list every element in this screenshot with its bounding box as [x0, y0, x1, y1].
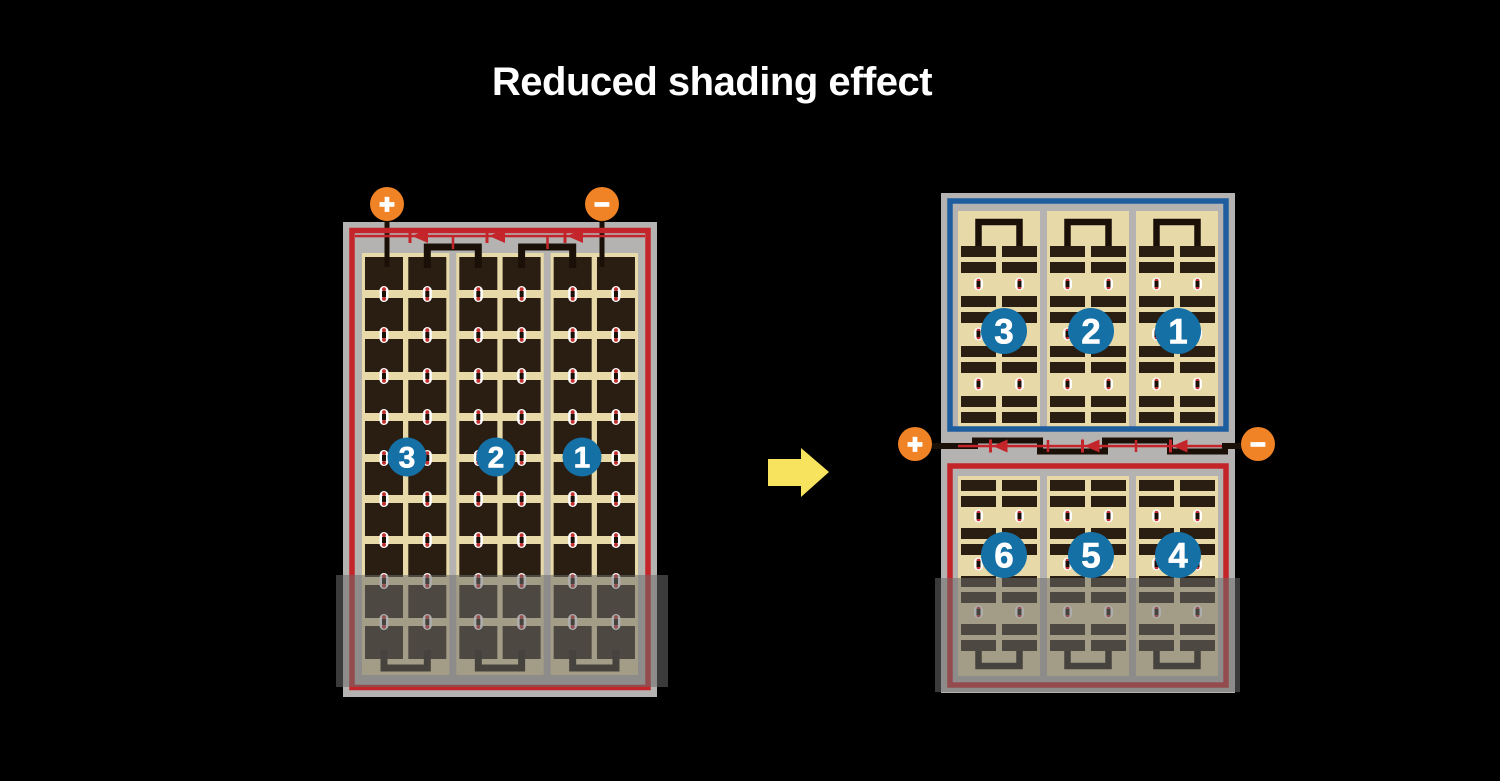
- half-cell: [1139, 412, 1174, 423]
- string-number-label: 5: [1081, 537, 1100, 576]
- solar-cell: [459, 544, 497, 577]
- connector-dash: [425, 496, 429, 502]
- connector-dash: [614, 291, 618, 297]
- connector-dot: [425, 379, 429, 383]
- half-cell: [1002, 396, 1037, 407]
- connector-dash: [614, 537, 618, 543]
- connector-dash: [520, 291, 524, 297]
- connector-dot: [520, 461, 524, 465]
- string-number-label: 2: [1081, 313, 1100, 352]
- half-cell: [1002, 262, 1037, 273]
- connector-dot: [382, 369, 386, 373]
- connector-dash: [425, 332, 429, 338]
- connector-dot: [571, 328, 575, 332]
- connector-dash: [1018, 281, 1022, 287]
- solar-cell: [503, 380, 541, 413]
- half-cell: [1091, 412, 1126, 423]
- connector-dot: [425, 328, 429, 332]
- connector-dash: [520, 537, 524, 543]
- connector-dot: [382, 533, 386, 537]
- connector-dot: [614, 502, 618, 506]
- connector-dash: [977, 381, 981, 387]
- solar-cell: [597, 298, 635, 331]
- connector-dash: [1066, 281, 1070, 287]
- connector-dash: [476, 496, 480, 502]
- half-cell: [1180, 396, 1215, 407]
- solar-cell: [597, 339, 635, 372]
- solar-cell: [365, 298, 403, 331]
- connector-dot: [382, 328, 386, 332]
- connector-dash: [614, 496, 618, 502]
- half-cell: [1091, 262, 1126, 273]
- terminal-stem: [385, 219, 390, 267]
- connector-dash: [571, 332, 575, 338]
- string-number-label: 1: [574, 442, 591, 475]
- connector-dot: [571, 543, 575, 547]
- solar-cell: [554, 298, 592, 331]
- connector-dash: [614, 414, 618, 420]
- solar-cell: [365, 339, 403, 372]
- connector-dash: [1018, 381, 1022, 387]
- connector-dash: [1155, 381, 1159, 387]
- connector-dot: [571, 410, 575, 414]
- connector-dot: [425, 543, 429, 547]
- half-cell: [1050, 246, 1085, 257]
- connector-dash: [520, 332, 524, 338]
- solar-cell: [459, 339, 497, 372]
- connector-dot: [476, 533, 480, 537]
- half-cell: [961, 480, 996, 491]
- solar-cell: [597, 503, 635, 536]
- half-cell: [1050, 262, 1085, 273]
- solar-cell: [597, 380, 635, 413]
- connector-dash: [476, 291, 480, 297]
- connector-dot: [476, 338, 480, 342]
- connector-dot: [614, 461, 618, 465]
- half-cell: [1180, 412, 1215, 423]
- right-panel-half-cell: 321654+−: [898, 193, 1275, 693]
- string-number-label: 2: [488, 442, 505, 475]
- connector-dot: [382, 461, 386, 465]
- connector-dash: [425, 414, 429, 420]
- half-cell: [1002, 480, 1037, 491]
- string-number-label: 1: [1168, 313, 1187, 352]
- connector-dash: [977, 513, 981, 519]
- solar-cell: [597, 462, 635, 495]
- half-cell: [961, 246, 996, 257]
- plus-terminal-label: +: [907, 429, 922, 459]
- connector-dot: [571, 502, 575, 506]
- connector-dot: [520, 420, 524, 424]
- connector-dash: [382, 332, 386, 338]
- connector-dot: [382, 451, 386, 455]
- connector-dash: [1107, 281, 1111, 287]
- connector-dot: [614, 287, 618, 291]
- string-number-label: 4: [1168, 537, 1188, 576]
- string-divider: [1040, 211, 1047, 429]
- connector-dot: [614, 533, 618, 537]
- minus-terminal-label: −: [594, 189, 609, 219]
- connector-dash: [571, 414, 575, 420]
- half-cell: [1050, 480, 1085, 491]
- solar-cell: [554, 503, 592, 536]
- minus-terminal-label: −: [1250, 429, 1265, 459]
- half-cell: [1002, 246, 1037, 257]
- connector-dash: [571, 291, 575, 297]
- half-cell: [1091, 396, 1126, 407]
- solar-cell: [408, 339, 446, 372]
- connector-dot: [476, 410, 480, 414]
- solar-cell: [365, 257, 403, 290]
- connector-dot: [382, 420, 386, 424]
- connector-dash: [614, 373, 618, 379]
- half-cell: [1091, 496, 1126, 507]
- solar-cell: [365, 380, 403, 413]
- connector-dot: [614, 410, 618, 414]
- string-number-label: 3: [399, 442, 416, 475]
- half-cell: [961, 496, 996, 507]
- connector-dash: [1107, 513, 1111, 519]
- connector-dash: [382, 373, 386, 379]
- half-cell: [1091, 296, 1126, 307]
- diode-cathode-bar: [1169, 440, 1172, 453]
- connector-dot: [571, 379, 575, 383]
- connector-dot: [476, 328, 480, 332]
- solar-cell: [408, 544, 446, 577]
- connector-dot: [614, 379, 618, 383]
- connector-dot: [520, 533, 524, 537]
- solar-cell: [365, 544, 403, 577]
- half-cell: [1091, 362, 1126, 373]
- connector-dot: [614, 451, 618, 455]
- connector-dot: [571, 287, 575, 291]
- solar-cell: [408, 298, 446, 331]
- connector-dash: [382, 455, 386, 461]
- connector-dot: [476, 502, 480, 506]
- half-cell: [1139, 496, 1174, 507]
- bus-tap: [452, 236, 455, 249]
- connector-dot: [382, 287, 386, 291]
- connector-dot: [614, 420, 618, 424]
- connector-dot: [382, 502, 386, 506]
- diode-cathode-bar: [409, 229, 412, 243]
- plus-terminal-label: +: [379, 189, 394, 219]
- connector-dot: [520, 492, 524, 496]
- connector-dot: [614, 543, 618, 547]
- shading-overlay: [935, 578, 1240, 692]
- connector-dot: [425, 287, 429, 291]
- diode-cathode-bar: [989, 440, 992, 453]
- connector-dash: [571, 537, 575, 543]
- half-cell: [961, 362, 996, 373]
- connector-dash: [1066, 513, 1070, 519]
- connector-dot: [382, 297, 386, 301]
- connector-dot: [425, 410, 429, 414]
- connector-dot: [476, 297, 480, 301]
- solar-cell: [408, 503, 446, 536]
- connector-dot: [476, 287, 480, 291]
- connector-dot: [520, 543, 524, 547]
- half-cell: [1139, 262, 1174, 273]
- transform-arrow-icon: [768, 448, 829, 497]
- connector-dash: [382, 496, 386, 502]
- connector-dash: [520, 373, 524, 379]
- connector-dash: [1196, 513, 1200, 519]
- half-cell: [1139, 296, 1174, 307]
- half-cell: [961, 296, 996, 307]
- solar-cell: [554, 544, 592, 577]
- connector-dash: [476, 537, 480, 543]
- half-cell: [1180, 362, 1215, 373]
- connector-dash: [1196, 381, 1200, 387]
- half-cell: [1180, 246, 1215, 257]
- connector-dot: [520, 297, 524, 301]
- connector-dot: [382, 410, 386, 414]
- connector-dot: [382, 379, 386, 383]
- connector-dot: [425, 502, 429, 506]
- diode-cathode-bar: [564, 229, 567, 243]
- half-cell: [1139, 480, 1174, 491]
- bus-tap: [546, 236, 549, 249]
- solar-cell: [503, 544, 541, 577]
- connector-dot: [520, 369, 524, 373]
- shading-effect-diagram: 321+−321654+−: [0, 0, 1500, 781]
- solar-cell: [459, 298, 497, 331]
- connector-dot: [425, 420, 429, 424]
- shading-overlay: [336, 575, 668, 687]
- connector-dash: [571, 496, 575, 502]
- half-cell: [1139, 362, 1174, 373]
- connector-dash: [425, 373, 429, 379]
- string-number-label: 3: [994, 313, 1013, 352]
- connector-dash: [614, 455, 618, 461]
- solar-cell: [554, 339, 592, 372]
- half-cell: [961, 412, 996, 423]
- diagram-canvas: Reduced shading effect 321+−321654+−: [0, 0, 1500, 781]
- connector-dash: [520, 414, 524, 420]
- connector-dot: [382, 338, 386, 342]
- connector-dot: [425, 297, 429, 301]
- connector-dash: [382, 537, 386, 543]
- solar-cell: [459, 380, 497, 413]
- connector-dash: [1066, 561, 1070, 567]
- half-cell: [1002, 412, 1037, 423]
- connector-dot: [520, 287, 524, 291]
- connector-dash: [1066, 381, 1070, 387]
- half-cell: [961, 262, 996, 273]
- connector-dot: [614, 369, 618, 373]
- connector-dash: [977, 561, 981, 567]
- half-cell: [1050, 362, 1085, 373]
- half-cell: [1180, 496, 1215, 507]
- solar-cell: [597, 421, 635, 454]
- connector-dash: [476, 332, 480, 338]
- connector-dash: [425, 537, 429, 543]
- connector-dot: [571, 297, 575, 301]
- connector-dot: [382, 543, 386, 547]
- connector-dash: [977, 331, 981, 337]
- connector-dash: [476, 373, 480, 379]
- connector-dot: [425, 338, 429, 342]
- connector-dot: [425, 533, 429, 537]
- connector-dash: [1196, 281, 1200, 287]
- solar-cell: [408, 380, 446, 413]
- connector-dash: [571, 373, 575, 379]
- connector-dash: [425, 291, 429, 297]
- half-cell: [1050, 396, 1085, 407]
- half-cell: [1050, 496, 1085, 507]
- connector-dot: [614, 328, 618, 332]
- half-cell: [1091, 246, 1126, 257]
- connector-dot: [382, 492, 386, 496]
- connector-dot: [520, 379, 524, 383]
- connector-dot: [520, 338, 524, 342]
- solar-cell: [597, 544, 635, 577]
- connector-dash: [520, 455, 524, 461]
- connector-dash: [1155, 281, 1159, 287]
- diode-cathode-bar: [1081, 440, 1084, 453]
- connector-dash: [614, 332, 618, 338]
- bus-tap: [1047, 440, 1050, 452]
- connector-dot: [571, 492, 575, 496]
- half-cell: [1180, 296, 1215, 307]
- connector-dash: [382, 291, 386, 297]
- connector-dot: [571, 369, 575, 373]
- solar-cell: [503, 298, 541, 331]
- half-cell: [1050, 296, 1085, 307]
- connector-dot: [614, 492, 618, 496]
- half-cell: [1002, 362, 1037, 373]
- solar-cell: [365, 503, 403, 536]
- half-cell: [1002, 496, 1037, 507]
- solar-cell: [503, 339, 541, 372]
- half-cell: [1139, 396, 1174, 407]
- half-cell: [1180, 480, 1215, 491]
- connector-dash: [1018, 513, 1022, 519]
- string-divider: [1129, 211, 1136, 429]
- solar-cell: [459, 503, 497, 536]
- connector-dot: [425, 369, 429, 373]
- connector-dot: [476, 420, 480, 424]
- connector-dash: [476, 414, 480, 420]
- connector-dot: [571, 533, 575, 537]
- connector-dot: [520, 451, 524, 455]
- half-cell: [1050, 412, 1085, 423]
- string-number-label: 6: [994, 537, 1013, 576]
- half-cell: [1180, 262, 1215, 273]
- connector-dot: [571, 420, 575, 424]
- connector-dot: [520, 502, 524, 506]
- connector-dot: [476, 369, 480, 373]
- bus-tap: [1135, 440, 1138, 452]
- connector-dash: [977, 281, 981, 287]
- connector-dot: [571, 338, 575, 342]
- half-cell: [1002, 296, 1037, 307]
- connector-dot: [476, 379, 480, 383]
- connector-dash: [1107, 381, 1111, 387]
- connector-dot: [614, 338, 618, 342]
- connector-dot: [476, 543, 480, 547]
- solar-cell: [503, 503, 541, 536]
- solar-cell: [554, 380, 592, 413]
- half-cell: [961, 396, 996, 407]
- connector-dash: [382, 414, 386, 420]
- connector-dot: [614, 297, 618, 301]
- connector-dash: [520, 496, 524, 502]
- diode-cathode-bar: [486, 229, 489, 243]
- connector-dash: [1155, 513, 1159, 519]
- connector-dot: [520, 410, 524, 414]
- connector-dot: [425, 492, 429, 496]
- half-cell: [1091, 480, 1126, 491]
- half-cell: [1139, 246, 1174, 257]
- connector-dot: [520, 328, 524, 332]
- terminal-stem: [600, 219, 605, 267]
- connector-dot: [476, 492, 480, 496]
- left-panel-full-cell: 321+−: [336, 187, 668, 697]
